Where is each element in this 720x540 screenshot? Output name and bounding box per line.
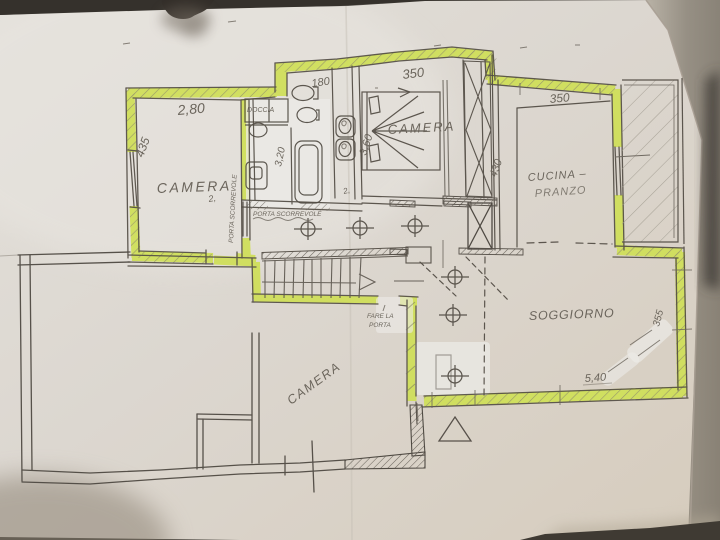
svg-text:2,: 2, — [207, 193, 217, 204]
svg-text:CAMERA: CAMERA — [157, 177, 232, 196]
svg-text:350: 350 — [549, 90, 570, 106]
svg-text:350: 350 — [402, 64, 426, 82]
svg-text:DOCCIA: DOCCIA — [247, 107, 275, 114]
svg-text:5,40: 5,40 — [584, 371, 607, 385]
svg-text:FARE LA: FARE LA — [367, 313, 394, 320]
svg-text:SOGGIORNO: SOGGIORNO — [529, 306, 615, 323]
svg-text:PORTA SCORREVOLE: PORTA SCORREVOLE — [253, 211, 322, 218]
svg-text:PORTA: PORTA — [369, 322, 391, 329]
svg-text:2,80: 2,80 — [176, 100, 206, 118]
